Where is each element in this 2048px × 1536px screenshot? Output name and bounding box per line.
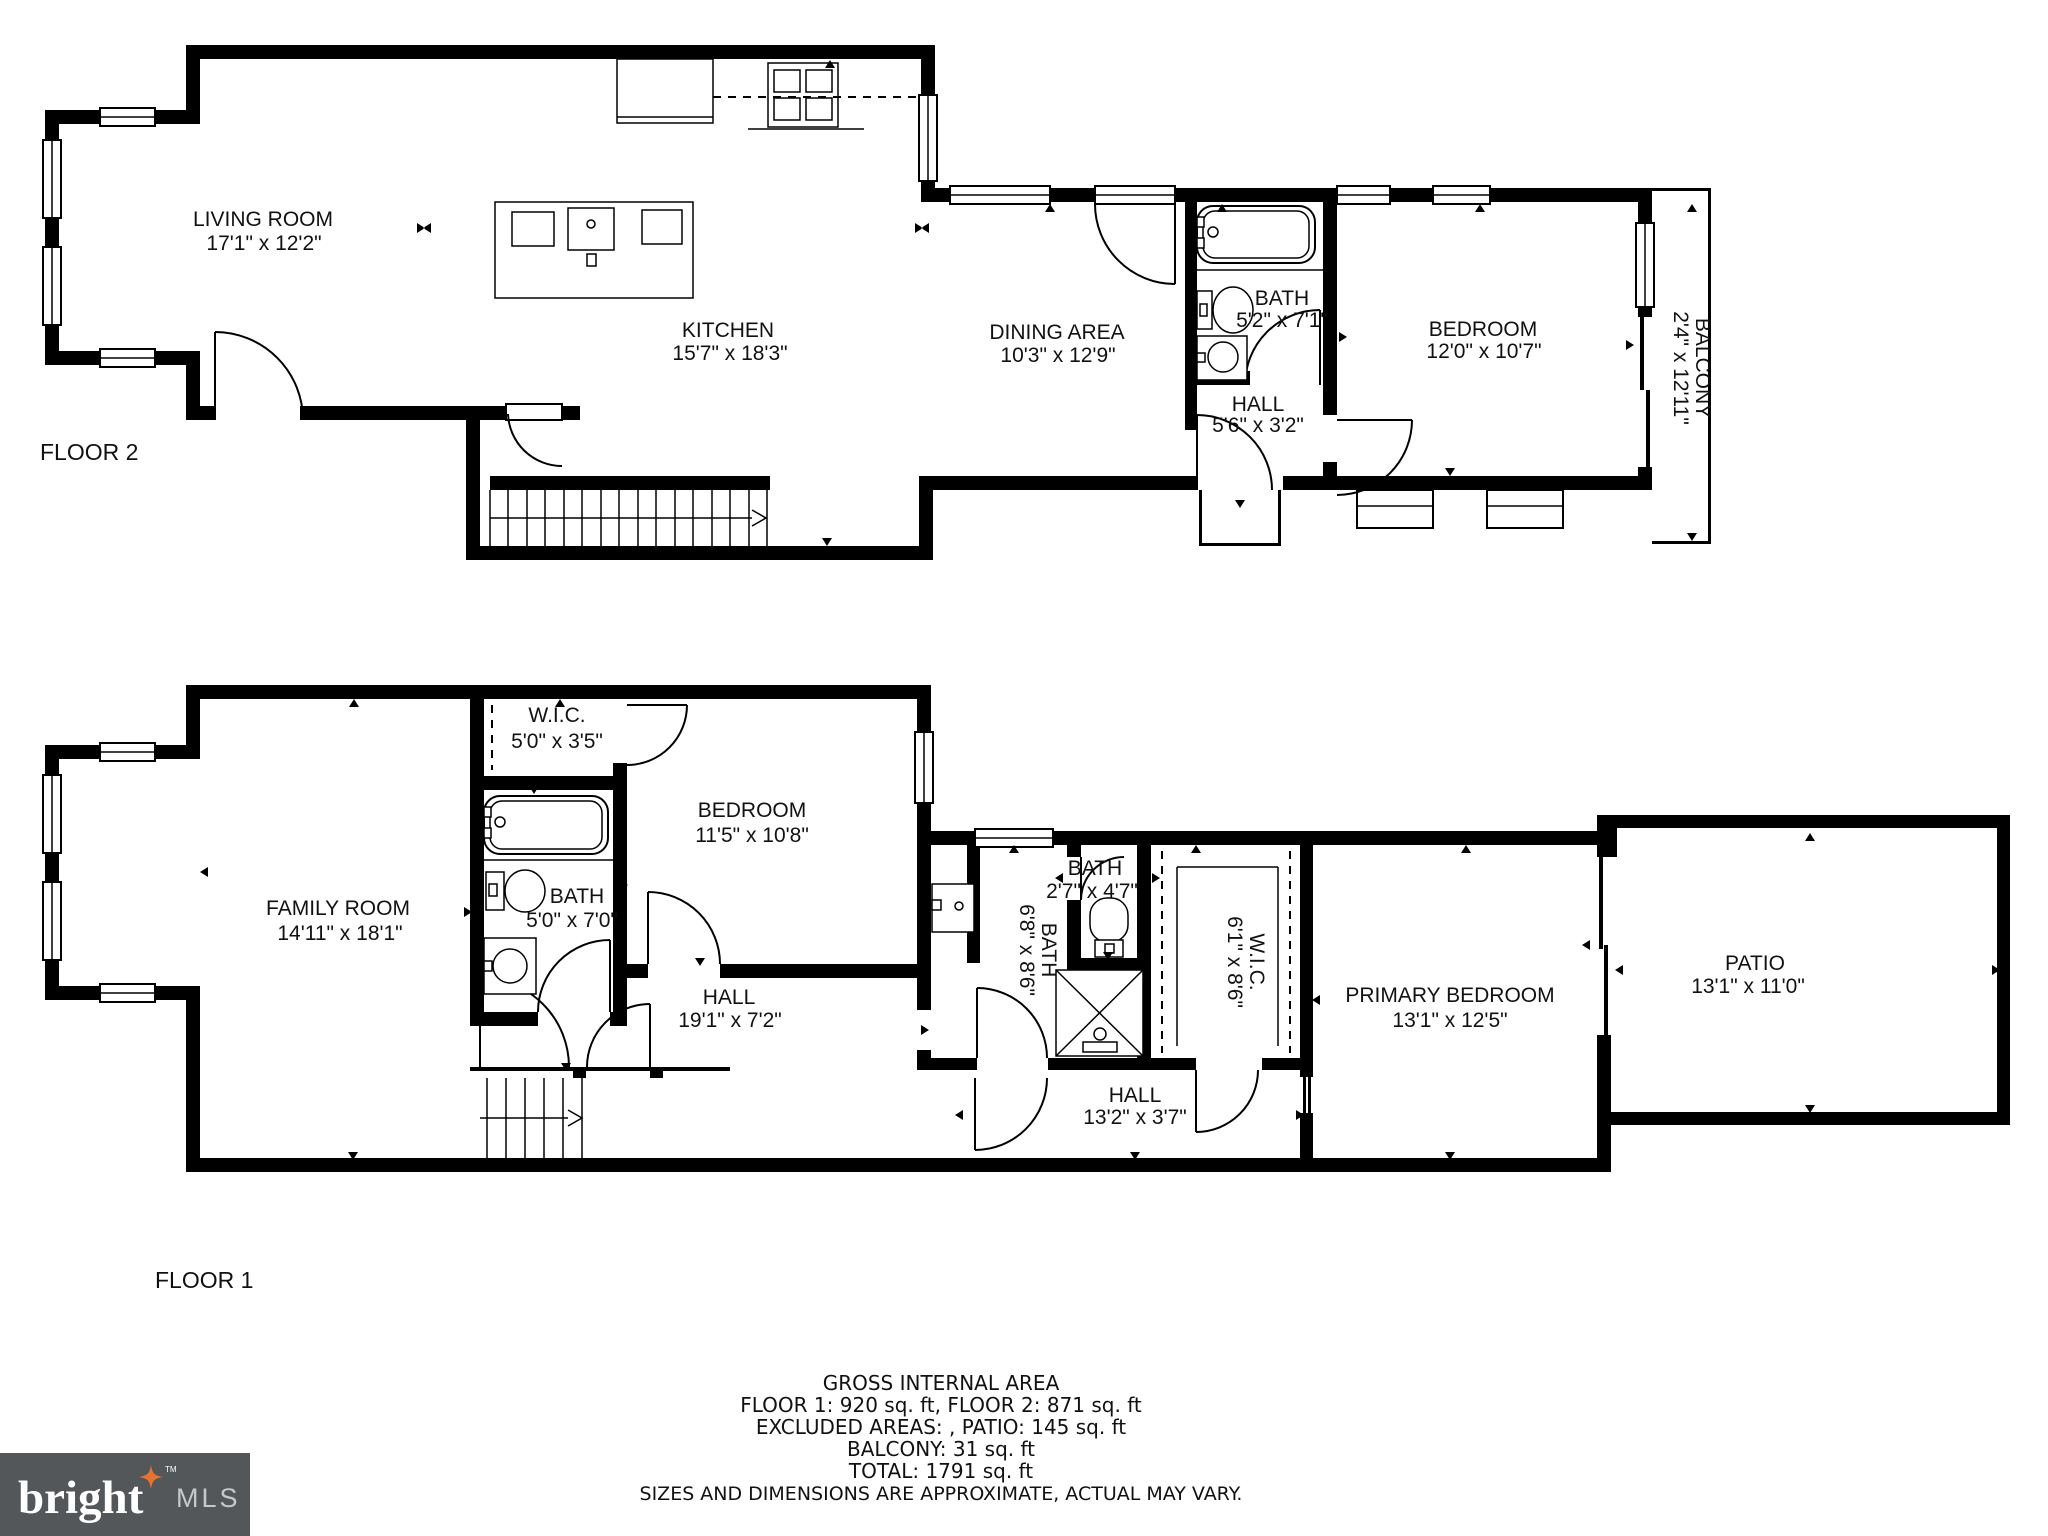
- hall2-dims: 13'2" x 3'7": [1083, 1106, 1187, 1129]
- kitchen-label: KITCHEN: [682, 319, 774, 342]
- wic1-label: W.I.C.: [528, 704, 585, 727]
- logo-mls-text: MLS: [176, 1483, 241, 1513]
- logo-tm-text: TM: [165, 1465, 177, 1474]
- balcony-dims: 2'4" x 12'11": [1669, 311, 1692, 425]
- bath2-dims: 5'2" x 7'1": [1236, 309, 1328, 332]
- patio-label: PATIO: [1725, 952, 1785, 975]
- hall2f-dims: 5'6" x 3'2": [1212, 414, 1304, 437]
- area-summary: GROSS INTERNAL AREA FLOOR 1: 920 sq. ft,…: [640, 1371, 1243, 1505]
- hall1-dims: 19'1" x 7'2": [678, 1009, 782, 1032]
- hall2-label: HALL: [1109, 1084, 1162, 1107]
- bathtub-icon: [484, 796, 613, 860]
- hall2f-label: HALL: [1232, 393, 1285, 416]
- bath1-dims: 5'0" x 7'0": [526, 909, 618, 932]
- bedroom1-label: BEDROOM: [698, 799, 807, 822]
- bath1-label: BATH: [550, 885, 604, 908]
- bedroom1-dims: 11'5" x 10'8": [695, 824, 809, 847]
- sink-icon: [484, 938, 536, 994]
- area-summary-excluded: EXCLUDED AREAS: , PATIO: 145 sq. ft: [756, 1415, 1126, 1439]
- entry-steps: [1199, 490, 1281, 546]
- floor2-markers: [417, 60, 1697, 546]
- hall1-label: HALL: [703, 986, 756, 1009]
- family-room-dims: 14'11" x 18'1": [277, 922, 402, 945]
- balcony-label: BALCONY: [1691, 318, 1714, 418]
- area-summary-total: TOTAL: 1791 sq. ft: [848, 1459, 1033, 1483]
- toilet-icon: [1090, 898, 1128, 957]
- stairs-floor2: [490, 476, 770, 546]
- patio-dims: 13'1" x 11'0": [1691, 975, 1805, 998]
- floor2-title: FLOOR 2: [40, 439, 138, 465]
- wic1-dims: 5'0" x 3'5": [511, 730, 603, 753]
- kitchen-dims: 15'7" x 18'3": [672, 342, 787, 365]
- bathmid-dims: 6'8" x 8'6": [1015, 904, 1038, 996]
- stairs-floor1: [470, 1067, 730, 1158]
- living-room-label: LIVING ROOM: [193, 208, 333, 231]
- floor1-labels: FAMILY ROOM 14'11" x 18'1" W.I.C. 5'0" x…: [155, 704, 1805, 1293]
- bedroom2-dims: 12'0" x 10'7": [1426, 340, 1541, 363]
- shower-icon: [1056, 970, 1143, 1056]
- vanity-sink-icon: [932, 884, 974, 932]
- closet-lines: [492, 705, 1290, 1053]
- floor2-labels: LIVING ROOM 17'1" x 12'2" KITCHEN 15'7" …: [40, 208, 1714, 465]
- floor1-plan: FAMILY ROOM 14'11" x 18'1" W.I.C. 5'0" x…: [43, 685, 2010, 1293]
- bath2-label: BATH: [1255, 287, 1309, 310]
- area-disclaimer: SIZES AND DIMENSIONS ARE APPROXIMATE, AC…: [640, 1483, 1243, 1505]
- fridge-icon: [617, 59, 713, 123]
- primary-bedroom-label: PRIMARY BEDROOM: [1345, 984, 1554, 1007]
- wic2-label: W.I.C.: [1245, 933, 1268, 990]
- logo-brand-text: bright: [18, 1472, 144, 1524]
- bath3-label: BATH: [1068, 857, 1122, 880]
- floorplan-canvas: LIVING ROOM 17'1" x 12'2" KITCHEN 15'7" …: [0, 0, 2048, 1536]
- bath3-dims: 2'7" x 4'7": [1046, 880, 1138, 903]
- area-summary-balcony: BALCONY: 31 sq. ft: [847, 1437, 1035, 1461]
- stove-icon: [713, 63, 919, 129]
- bedroom2-label: BEDROOM: [1429, 318, 1538, 341]
- living-room-dims: 17'1" x 12'2": [206, 232, 321, 255]
- kitchen-island: [495, 202, 693, 298]
- floor2-plan: LIVING ROOM 17'1" x 12'2" KITCHEN 15'7" …: [40, 45, 1714, 560]
- bathmid-label: BATH: [1037, 923, 1060, 977]
- brightmls-logo: bright TM MLS: [0, 1453, 250, 1536]
- area-summary-floors: FLOOR 1: 920 sq. ft, FLOOR 2: 871 sq. ft: [740, 1393, 1142, 1417]
- floor1-title: FLOOR 1: [155, 1267, 253, 1293]
- floor1-windows: [43, 732, 1053, 1002]
- sink-icon: [1197, 336, 1247, 380]
- wic2-dims: 6'1" x 8'6": [1223, 916, 1246, 1008]
- area-summary-title: GROSS INTERNAL AREA: [823, 1371, 1060, 1395]
- primary-bedroom-dims: 13'1" x 12'5": [1392, 1009, 1507, 1032]
- bathtub-icon: [1197, 206, 1323, 270]
- floor2-windows: [43, 95, 1654, 528]
- floor2-walls: [45, 45, 1652, 560]
- family-room-label: FAMILY ROOM: [266, 897, 410, 920]
- floorplan-page: LIVING ROOM 17'1" x 12'2" KITCHEN 15'7" …: [0, 0, 2048, 1536]
- dining-area-label: DINING AREA: [989, 321, 1124, 344]
- toilet-icon: [486, 870, 545, 912]
- dining-area-dims: 10'3" x 12'9": [1000, 344, 1115, 367]
